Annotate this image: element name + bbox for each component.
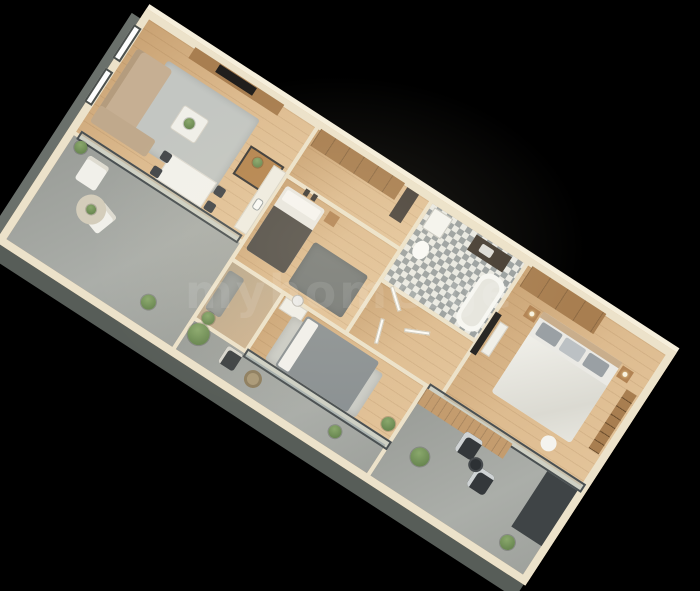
apartment-plan — [0, 8, 677, 585]
floorplan-scene: myhome.ge — [0, 0, 700, 591]
